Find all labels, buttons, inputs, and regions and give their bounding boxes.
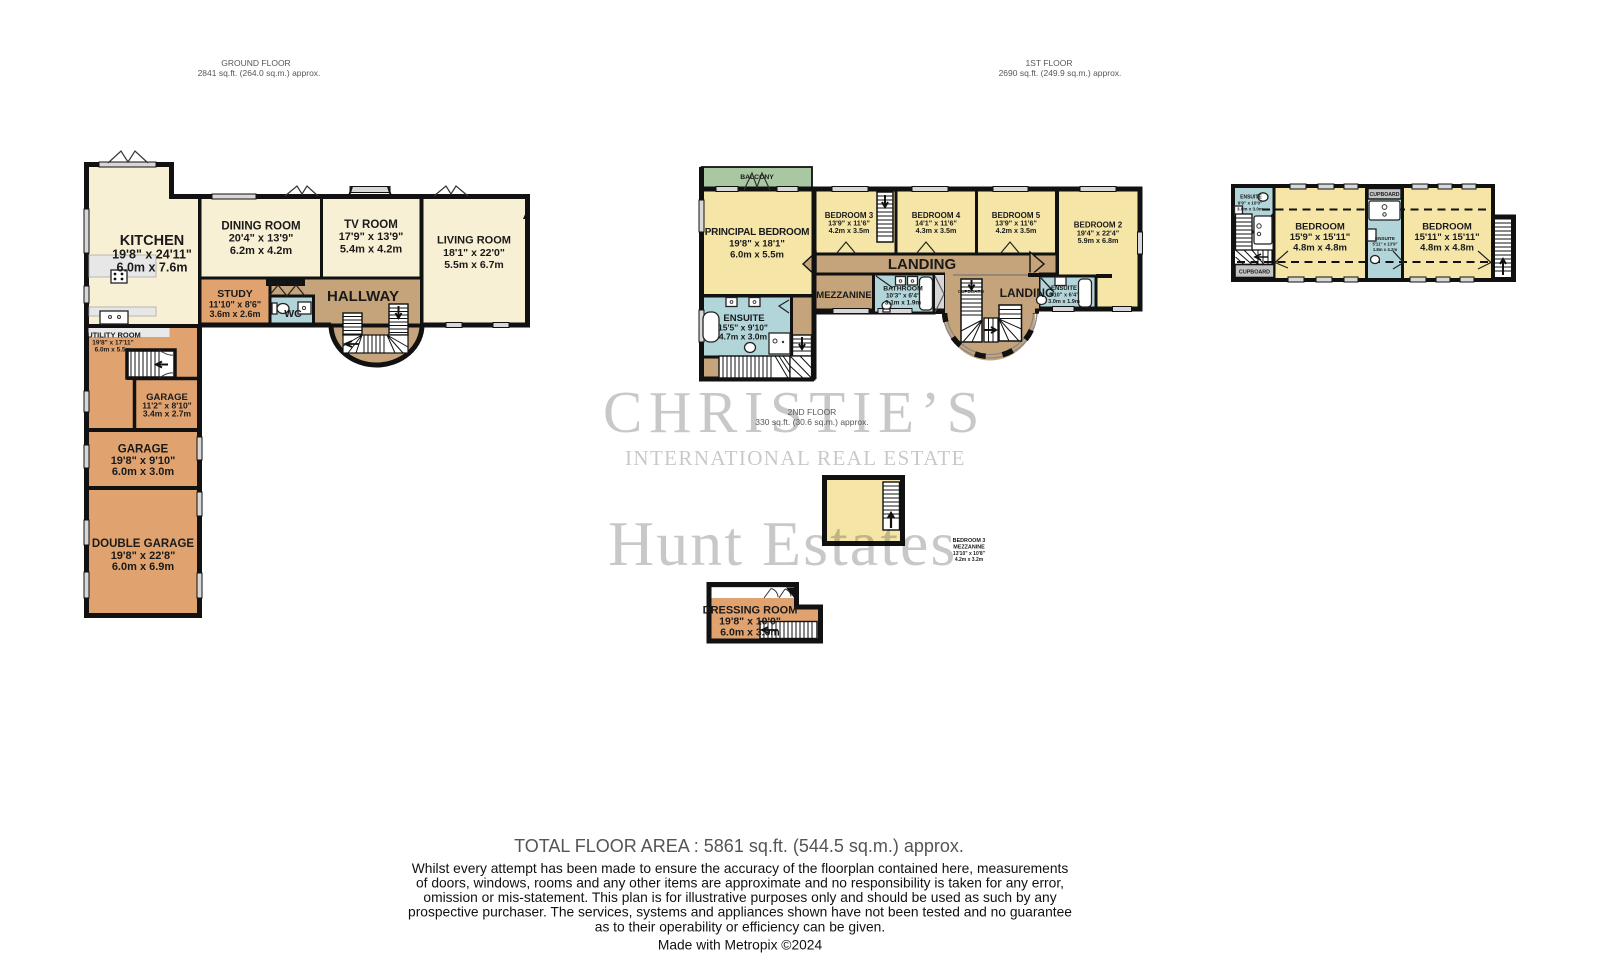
svg-text:2841 sq.ft. (264.0 sq.m.) appr: 2841 sq.ft. (264.0 sq.m.) approx. <box>198 68 321 78</box>
svg-text:5.9m x 6.8m: 5.9m x 6.8m <box>1078 236 1119 245</box>
svg-text:3.0m x 3.0m: 3.0m x 3.0m <box>1237 207 1263 212</box>
svg-text:2ND FLOOR: 2ND FLOOR <box>788 407 837 417</box>
svg-text:4.2m x 3.5m: 4.2m x 3.5m <box>829 226 870 235</box>
svg-text:LANDING: LANDING <box>1000 286 1055 300</box>
svg-text:2690 sq.ft. (249.9 sq.m.) appr: 2690 sq.ft. (249.9 sq.m.) approx. <box>999 68 1122 78</box>
svg-text:DOUBLE GARAGE: DOUBLE GARAGE <box>92 538 195 550</box>
svg-text:4.8m x 4.8m: 4.8m x 4.8m <box>1420 243 1474 254</box>
svg-text:TOTAL FLOOR AREA : 5861 sq.ft.: TOTAL FLOOR AREA : 5861 sq.ft. (544.5 sq… <box>514 836 964 856</box>
svg-text:4.2m x 3.2m: 4.2m x 3.2m <box>955 557 984 563</box>
svg-text:Hunt Estates: Hunt Estates <box>608 508 957 579</box>
svg-text:prospective purchaser. The ser: prospective purchaser. The services, sys… <box>408 905 1072 920</box>
svg-text:17'9" x 13'9": 17'9" x 13'9" <box>339 231 404 243</box>
svg-text:as to their operability or eff: as to their operability or efficiency ca… <box>595 920 885 935</box>
svg-text:MEZZANINE: MEZZANINE <box>816 290 871 301</box>
svg-text:1ST FLOOR: 1ST FLOOR <box>1025 58 1072 68</box>
svg-text:3.1m x 1.9m: 3.1m x 1.9m <box>885 300 922 307</box>
svg-text:WC: WC <box>284 308 302 320</box>
svg-text:15'9" x 15'11": 15'9" x 15'11" <box>1290 232 1351 243</box>
svg-text:5.5m x 6.7m: 5.5m x 6.7m <box>444 259 504 271</box>
svg-text:5.4m x 4.2m: 5.4m x 4.2m <box>340 244 403 256</box>
svg-text:6.0m x 3.0m: 6.0m x 3.0m <box>112 466 175 478</box>
svg-text:UTILITY ROOM: UTILITY ROOM <box>87 331 141 340</box>
svg-text:6.2m x 4.2m: 6.2m x 4.2m <box>230 245 293 257</box>
svg-text:CUPBOARD: CUPBOARD <box>958 289 985 294</box>
svg-text:5'11" x 13'9": 5'11" x 13'9" <box>1373 242 1398 247</box>
svg-text:BEDROOM 3: BEDROOM 3 <box>953 538 986 544</box>
svg-text:19'8" x 24'11": 19'8" x 24'11" <box>112 248 192 262</box>
svg-text:19'8" x 17'11": 19'8" x 17'11" <box>92 340 133 347</box>
svg-text:DINING ROOM: DINING ROOM <box>221 221 300 233</box>
svg-text:ENSUITE: ENSUITE <box>1375 236 1395 241</box>
svg-text:6.0m x 6.9m: 6.0m x 6.9m <box>112 561 175 573</box>
svg-text:BALCONY: BALCONY <box>740 174 774 181</box>
svg-text:9'10" x 6'4": 9'10" x 6'4" <box>1049 293 1079 299</box>
svg-text:STUDY: STUDY <box>217 288 253 300</box>
svg-text:3.4m x 2.7m: 3.4m x 2.7m <box>143 409 192 419</box>
svg-text:LIVING ROOM: LIVING ROOM <box>437 235 511 247</box>
svg-text:3.6m x 2.6m: 3.6m x 2.6m <box>209 309 260 319</box>
svg-text:BATHROOM: BATHROOM <box>883 286 923 293</box>
svg-text:ENSUITE: ENSUITE <box>1051 286 1077 292</box>
svg-text:Whilst every attempt has been: Whilst every attempt has been made to en… <box>412 861 1069 876</box>
svg-text:6.0m x 3.0m: 6.0m x 3.0m <box>720 627 780 639</box>
svg-text:CUPBOARD: CUPBOARD <box>1239 270 1270 276</box>
svg-text:BEDROOM: BEDROOM <box>1422 222 1472 233</box>
svg-text:11'10" x 8'6": 11'10" x 8'6" <box>209 300 261 310</box>
svg-text:4.7m x 3.0m: 4.7m x 3.0m <box>719 332 768 342</box>
svg-text:PRINCIPAL BEDROOM: PRINCIPAL BEDROOM <box>705 227 810 238</box>
svg-text:18'1" x 22'0": 18'1" x 22'0" <box>443 247 505 259</box>
svg-text:6.0m x 7.6m: 6.0m x 7.6m <box>117 261 188 275</box>
svg-text:4.3m x 3.5m: 4.3m x 3.5m <box>916 226 957 235</box>
svg-text:6.0m x 5.5m: 6.0m x 5.5m <box>730 250 784 261</box>
svg-text:4.2m x 3.5m: 4.2m x 3.5m <box>996 226 1037 235</box>
svg-text:TV ROOM: TV ROOM <box>344 219 398 231</box>
svg-text:10'3" x 6'4": 10'3" x 6'4" <box>886 293 920 300</box>
svg-text:omission or mis-statement. Thi: omission or mis-statement. This plan is … <box>423 890 1056 905</box>
svg-text:LANDING: LANDING <box>888 256 956 273</box>
svg-text:of doors, windows, rooms and a: of doors, windows, rooms and any other i… <box>416 876 1064 891</box>
svg-text:3.0m x 1.9m: 3.0m x 1.9m <box>1048 299 1080 305</box>
svg-text:HALLWAY: HALLWAY <box>327 288 399 305</box>
svg-text:CUPBOARD: CUPBOARD <box>1370 192 1400 198</box>
svg-text:15'11" x 15'11": 15'11" x 15'11" <box>1414 232 1479 243</box>
svg-text:6.0m x 5.5m: 6.0m x 5.5m <box>95 347 132 354</box>
svg-text:9'9" x 10'0": 9'9" x 10'0" <box>1238 201 1262 206</box>
svg-text:GARAGE: GARAGE <box>118 444 169 456</box>
svg-text:4.8m x 4.8m: 4.8m x 4.8m <box>1293 243 1347 254</box>
svg-text:19'8" x 18'1": 19'8" x 18'1" <box>729 239 785 250</box>
svg-text:MEZZANINE: MEZZANINE <box>953 545 985 551</box>
svg-text:330 sq.ft. (30.6 sq.m.) approx: 330 sq.ft. (30.6 sq.m.) approx. <box>755 417 868 427</box>
svg-text:BEDROOM: BEDROOM <box>1295 222 1345 233</box>
svg-text:GROUND FLOOR: GROUND FLOOR <box>221 58 290 68</box>
svg-text:INTERNATIONAL REAL ESTATE: INTERNATIONAL REAL ESTATE <box>625 446 966 470</box>
svg-text:20'4" x 13'9": 20'4" x 13'9" <box>229 233 294 245</box>
svg-text:Made with Metropix ©2024: Made with Metropix ©2024 <box>658 938 823 953</box>
